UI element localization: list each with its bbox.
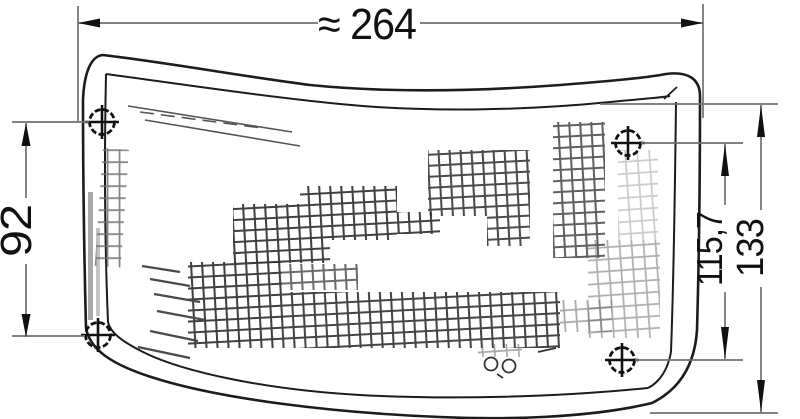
arrow-width-right: [681, 19, 703, 28]
screw-top-left-icon: [85, 105, 119, 139]
molded-detail: [478, 344, 556, 378]
lens-reflection-streaks-top: [128, 106, 300, 146]
dimension-label-left-height: 92: [0, 205, 41, 257]
arrow-133-up: [757, 105, 765, 137]
dimension-label-right-inner-height: 115,7: [689, 212, 730, 286]
lamp-inner-bezel-top: [106, 74, 670, 110]
dimension-label-width: ≈ 264: [318, 0, 416, 49]
lamp-inner-bezel-right: [671, 102, 676, 352]
lens-ladder-texture: [95, 148, 129, 268]
lamp-technical-drawing: ≈ 264 92 115,7 133: [0, 0, 800, 419]
lamp-corner-join: [648, 352, 671, 388]
screw-bottom-right-icon: [605, 343, 639, 377]
arrow-1157-up: [721, 144, 729, 176]
arrow-1157-down: [721, 327, 729, 359]
dimension-label-right-outer-height: 133: [730, 219, 772, 277]
arrow-width-left: [78, 19, 100, 28]
drawing-canvas: ≈ 264 92 115,7 133: [0, 0, 800, 419]
arrow-133-down: [757, 380, 765, 412]
corner-notch-mark: [664, 87, 677, 99]
arrow-92-up: [22, 123, 31, 146]
arrow-92-down: [22, 314, 31, 337]
lens-grid-texture: [188, 122, 660, 348]
